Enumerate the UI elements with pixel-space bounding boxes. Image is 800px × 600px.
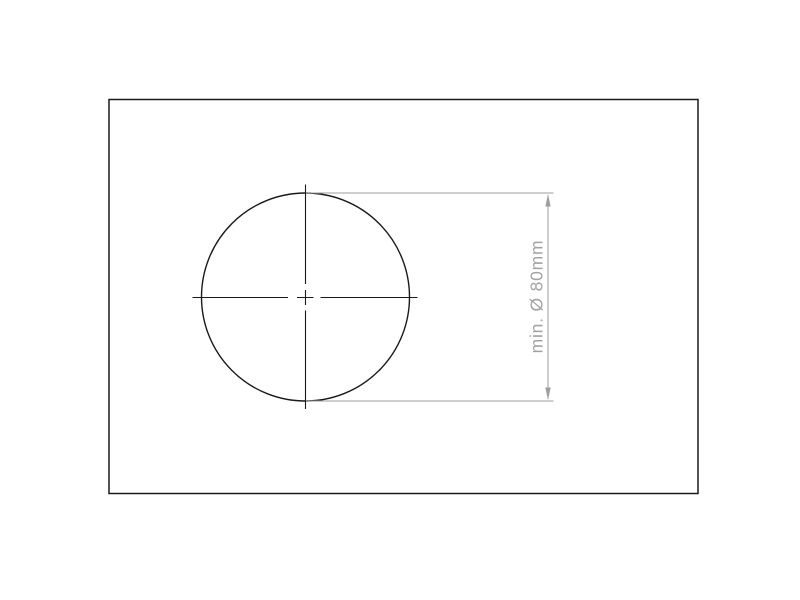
panel-outline (109, 100, 698, 494)
dimension-arrow-up-icon (545, 194, 550, 207)
dimension-label: min. Ø 80mm (527, 240, 547, 354)
drawing-canvas: min. Ø 80mm (0, 0, 800, 600)
dimension-arrow-down-icon (545, 388, 550, 401)
technical-drawing: min. Ø 80mm (0, 0, 800, 600)
